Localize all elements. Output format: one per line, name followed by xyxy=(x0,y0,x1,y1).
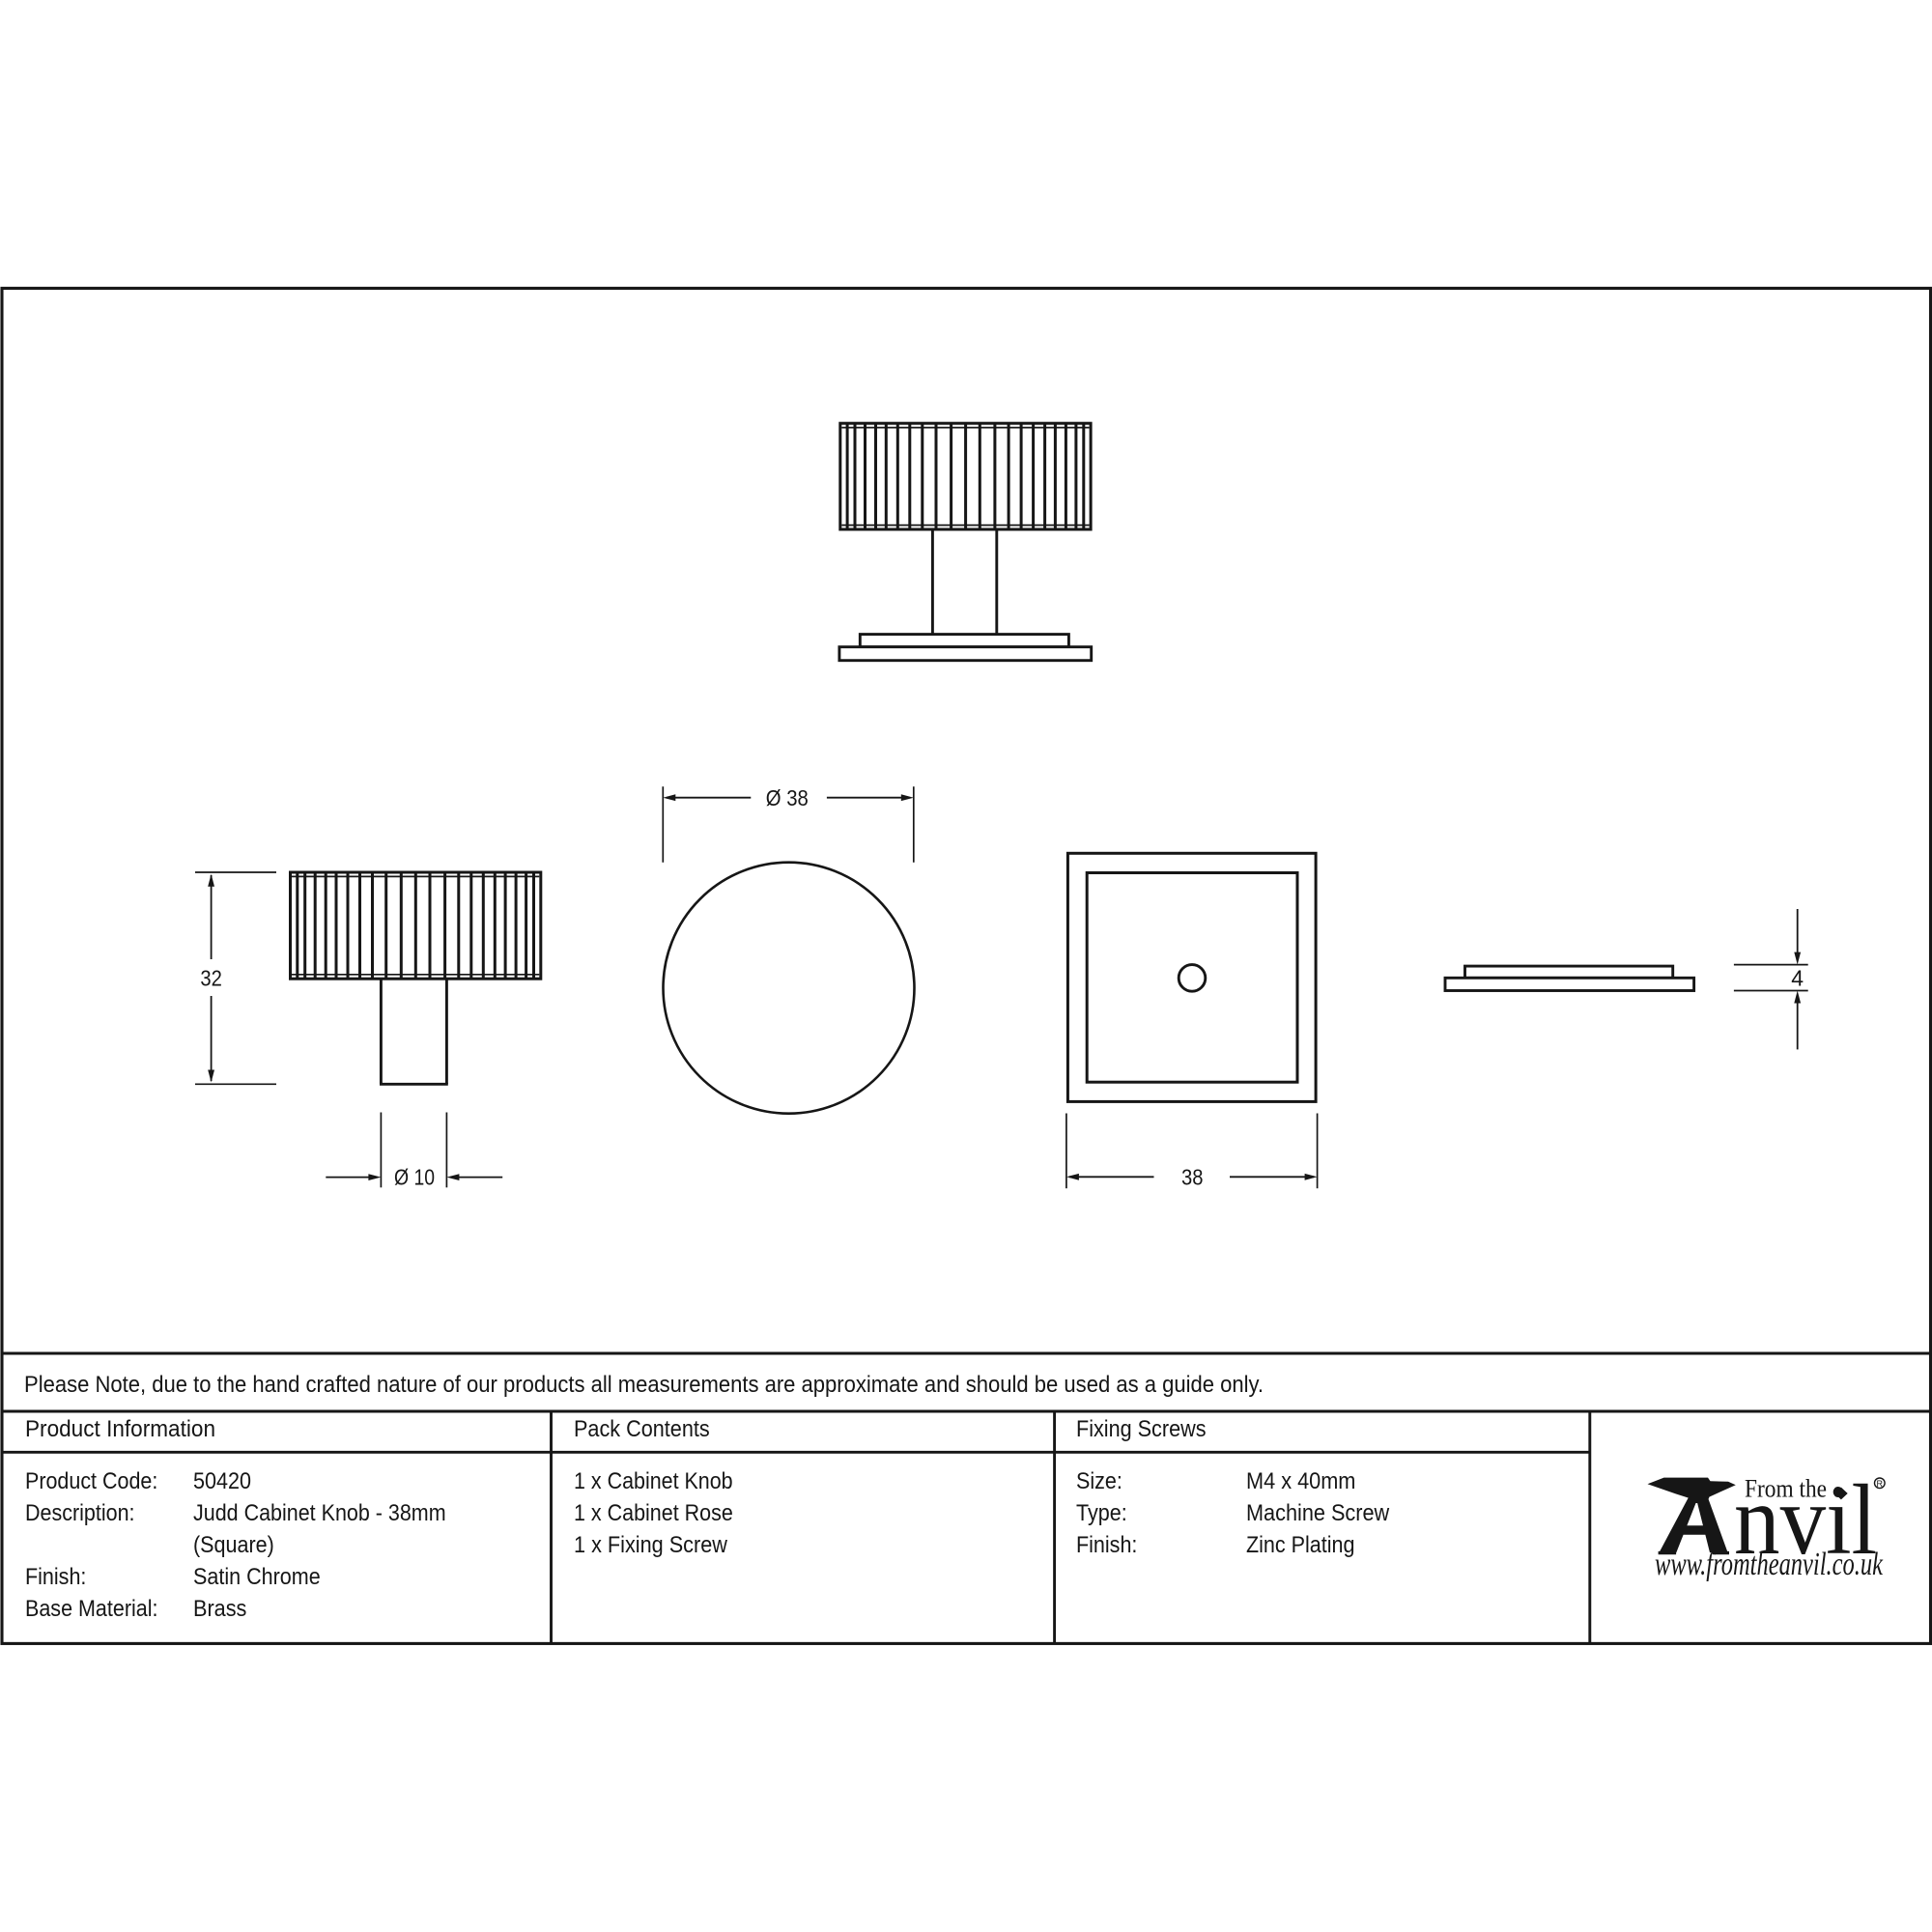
svg-text:(Square): (Square) xyxy=(193,1532,274,1558)
svg-text:1 x Cabinet Rose: 1 x Cabinet Rose xyxy=(574,1500,733,1526)
svg-text:Size:: Size: xyxy=(1076,1468,1122,1494)
svg-text:R: R xyxy=(1877,1479,1884,1489)
svg-text:Zinc Plating: Zinc Plating xyxy=(1246,1532,1355,1558)
svg-text:Description:: Description: xyxy=(25,1500,135,1526)
svg-text:M4 x 40mm: M4 x 40mm xyxy=(1246,1468,1355,1494)
svg-text:Please Note, due to the hand c: Please Note, due to the hand crafted nat… xyxy=(24,1372,1264,1398)
svg-text:Base Material:: Base Material: xyxy=(25,1596,158,1622)
svg-text:Judd Cabinet Knob - 38mm: Judd Cabinet Knob - 38mm xyxy=(193,1500,446,1526)
svg-text:Fixing Screws: Fixing Screws xyxy=(1076,1416,1207,1442)
svg-text:38: 38 xyxy=(1181,1164,1204,1189)
svg-text:1 x Cabinet Knob: 1 x Cabinet Knob xyxy=(574,1468,733,1494)
svg-text:Product Code:: Product Code: xyxy=(25,1468,157,1494)
svg-text:1 x Fixing Screw: 1 x Fixing Screw xyxy=(574,1532,727,1558)
svg-text:Satin Chrome: Satin Chrome xyxy=(193,1564,321,1590)
svg-text:Ø 38: Ø 38 xyxy=(766,785,809,810)
svg-text:Finish:: Finish: xyxy=(1076,1532,1137,1558)
svg-text:www.fromtheanvil.co.uk: www.fromtheanvil.co.uk xyxy=(1655,1547,1884,1582)
svg-text:Machine Screw: Machine Screw xyxy=(1246,1500,1390,1526)
svg-text:Product Information: Product Information xyxy=(25,1416,215,1442)
svg-text:Brass: Brass xyxy=(193,1596,246,1622)
svg-text:4: 4 xyxy=(1791,965,1804,990)
svg-text:Finish:: Finish: xyxy=(25,1564,86,1590)
svg-text:Ø 10: Ø 10 xyxy=(394,1165,435,1190)
svg-text:50420: 50420 xyxy=(193,1468,251,1494)
svg-text:Pack Contents: Pack Contents xyxy=(574,1416,710,1442)
svg-text:Type:: Type: xyxy=(1076,1500,1127,1526)
svg-text:32: 32 xyxy=(200,965,222,990)
